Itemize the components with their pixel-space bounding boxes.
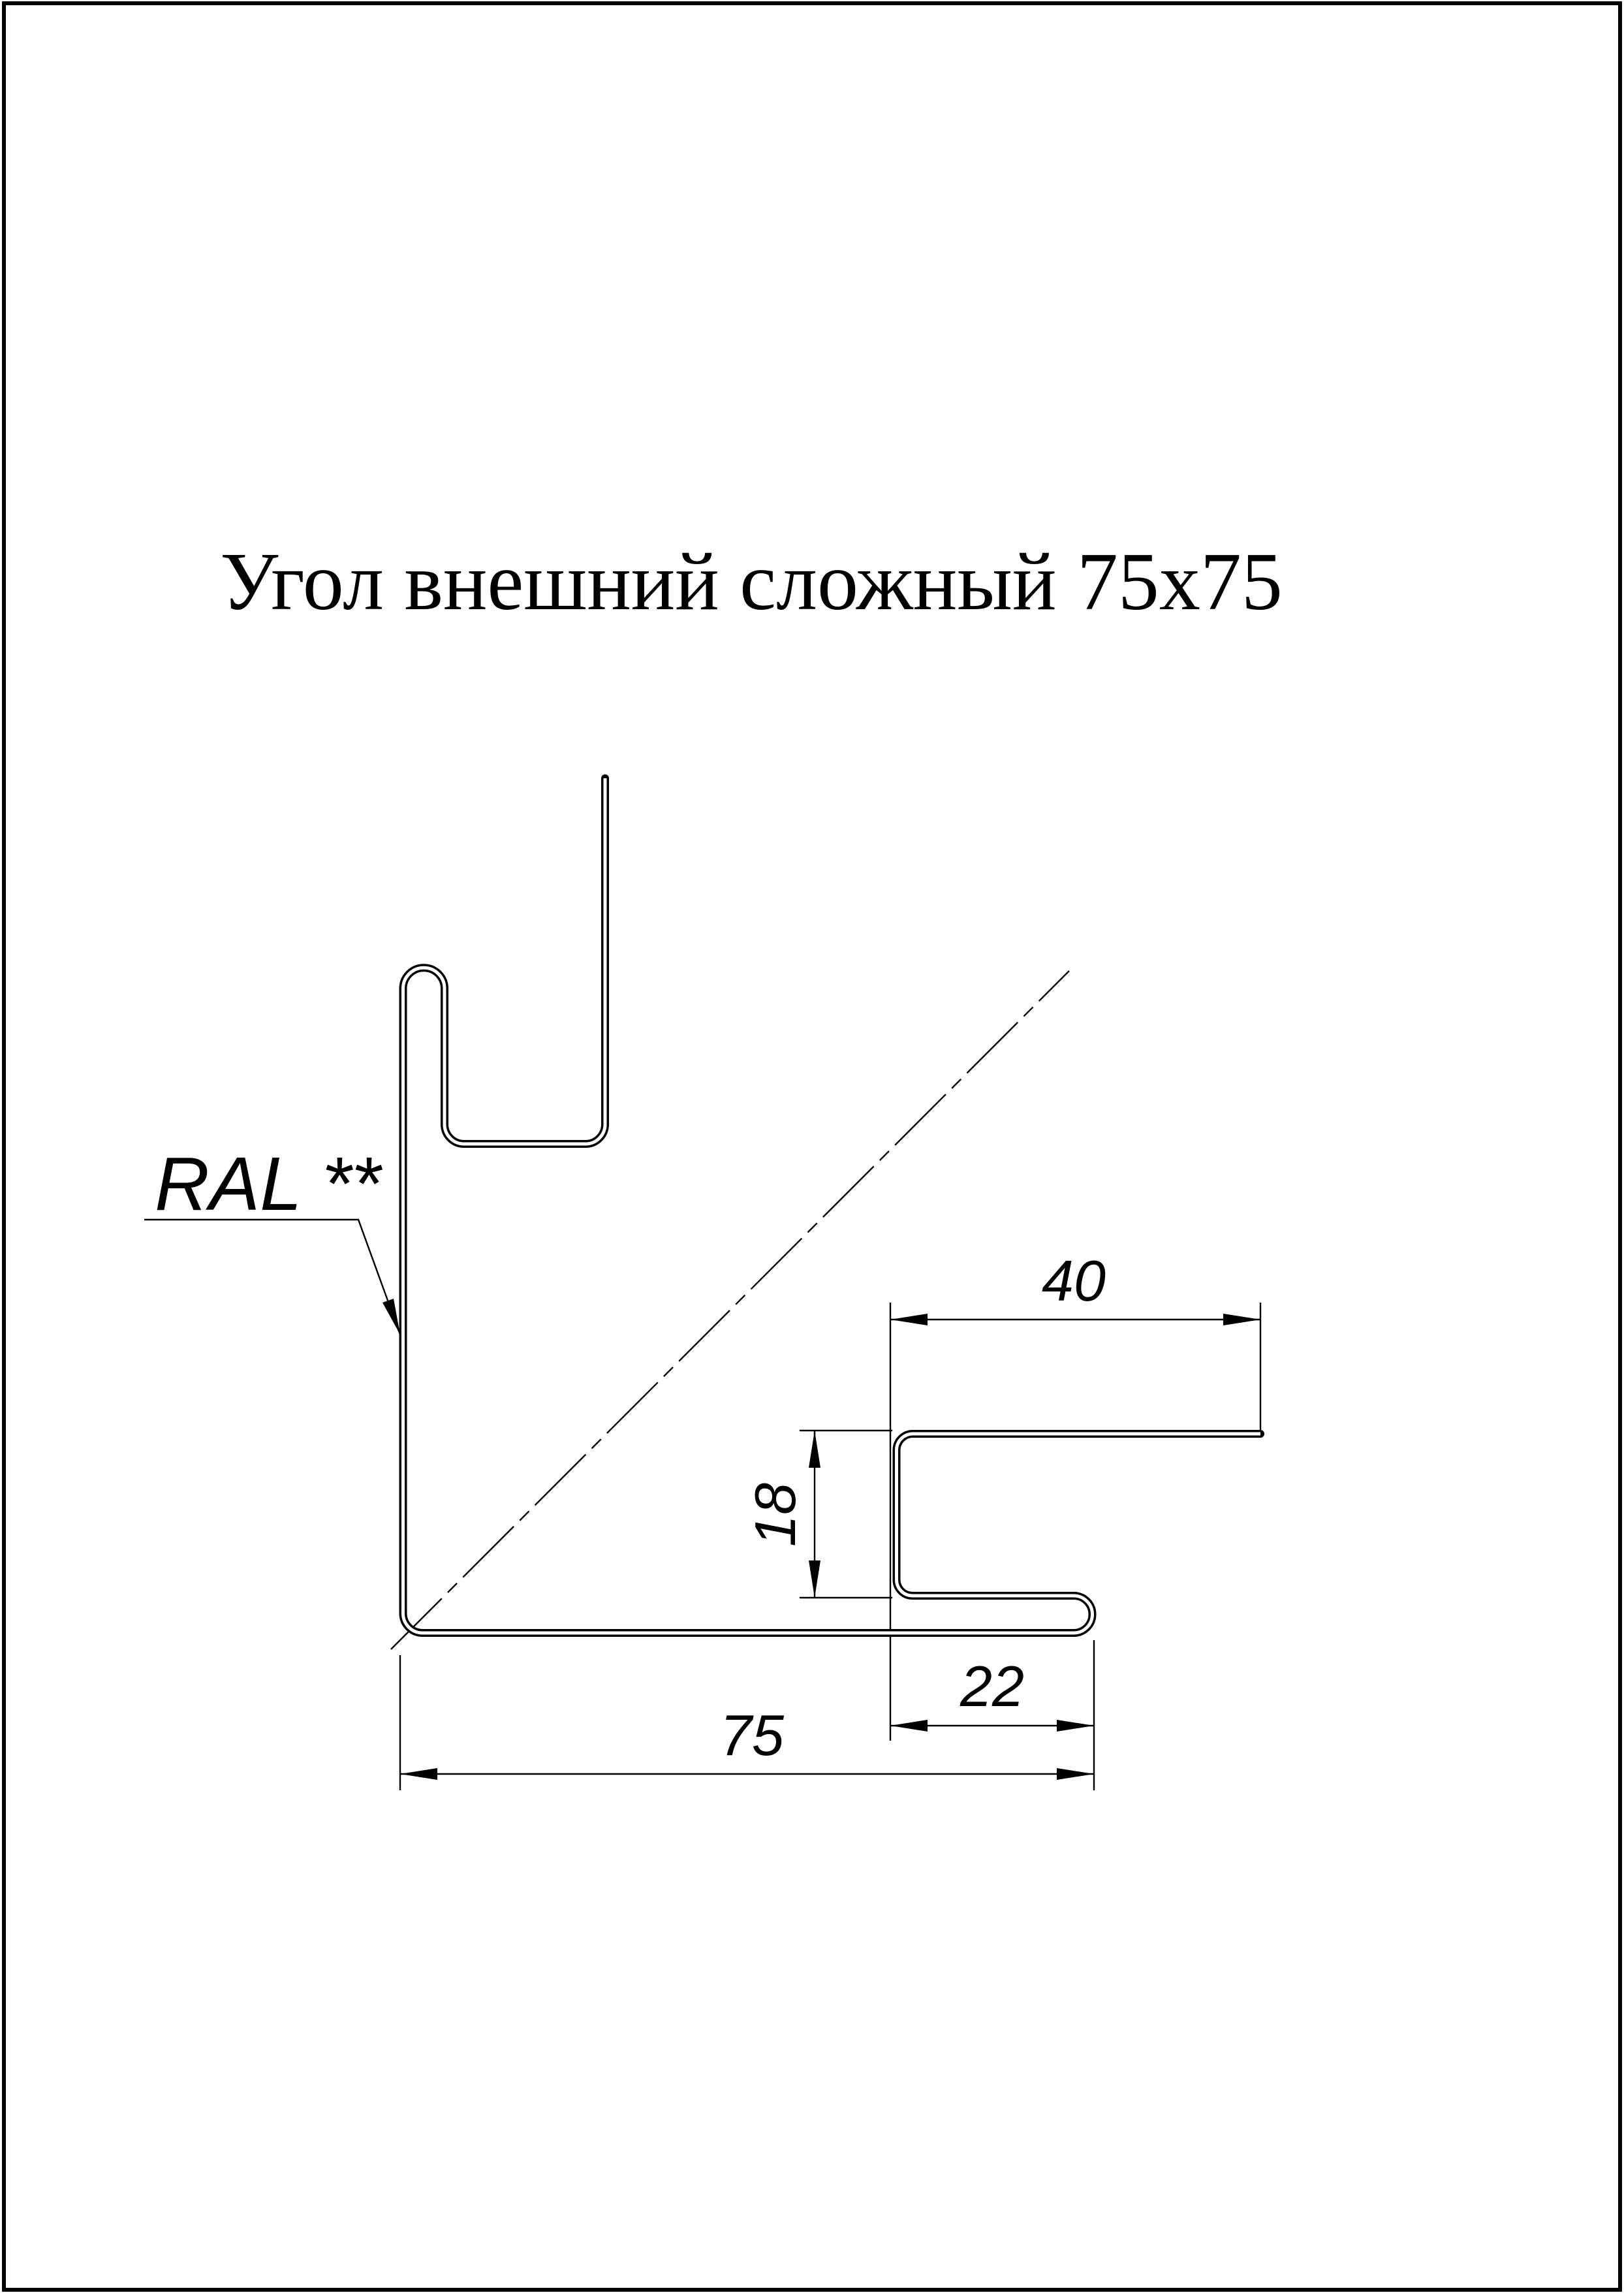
dimension-value-flange-width: 40 xyxy=(1042,1248,1106,1313)
drawing-sheet: Угол внешний сложный 75х75 RAL ** 40 18 … xyxy=(0,0,1624,2295)
page-title: Угол внешний сложный 75х75 xyxy=(220,537,1283,627)
profile-outline xyxy=(403,778,1261,1633)
ral-color-label: RAL ** xyxy=(155,1141,383,1226)
dimension-arrowheads xyxy=(383,1299,1260,1780)
profile-outline-core xyxy=(403,778,1261,1633)
dimension-value-hook-width: 22 xyxy=(960,1654,1024,1718)
dimension-value-hook-height: 18 xyxy=(743,1483,807,1547)
dimension-value-leg-length: 75 xyxy=(720,1703,785,1767)
symmetry-centerline xyxy=(391,971,1069,1649)
